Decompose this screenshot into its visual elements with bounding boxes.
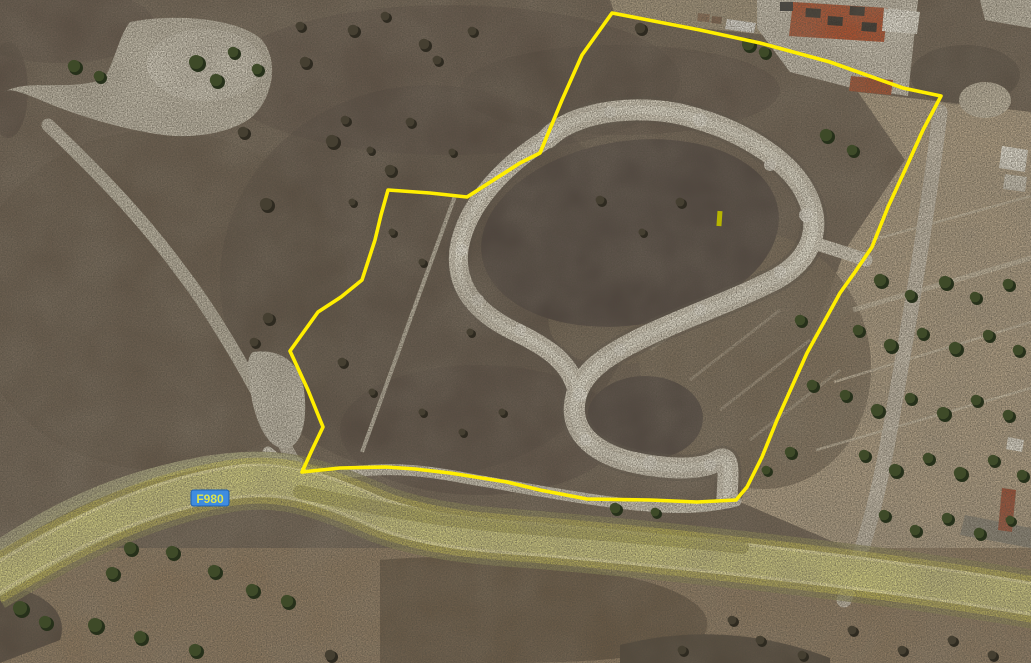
road-label-text: F980 bbox=[196, 492, 224, 506]
yellow-marker bbox=[716, 211, 722, 226]
terrain-grain-texture bbox=[0, 0, 1031, 663]
road-label-badge: F980 bbox=[191, 490, 229, 506]
satellite-map[interactable]: F980 bbox=[0, 0, 1031, 663]
satellite-map-viewport[interactable]: F980 bbox=[0, 0, 1031, 663]
